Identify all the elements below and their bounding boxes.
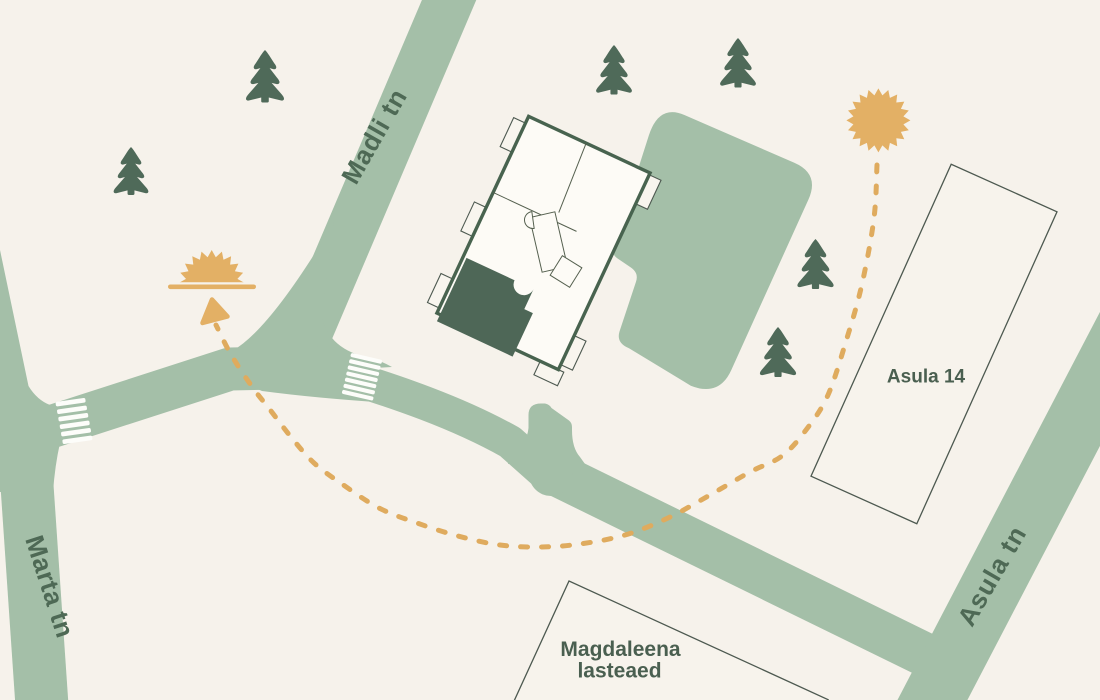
svg-text:Magdaleena: Magdaleena <box>560 638 681 661</box>
svg-text:Asula 14: Asula 14 <box>887 367 966 388</box>
svg-text:lasteaed: lasteaed <box>577 660 661 683</box>
